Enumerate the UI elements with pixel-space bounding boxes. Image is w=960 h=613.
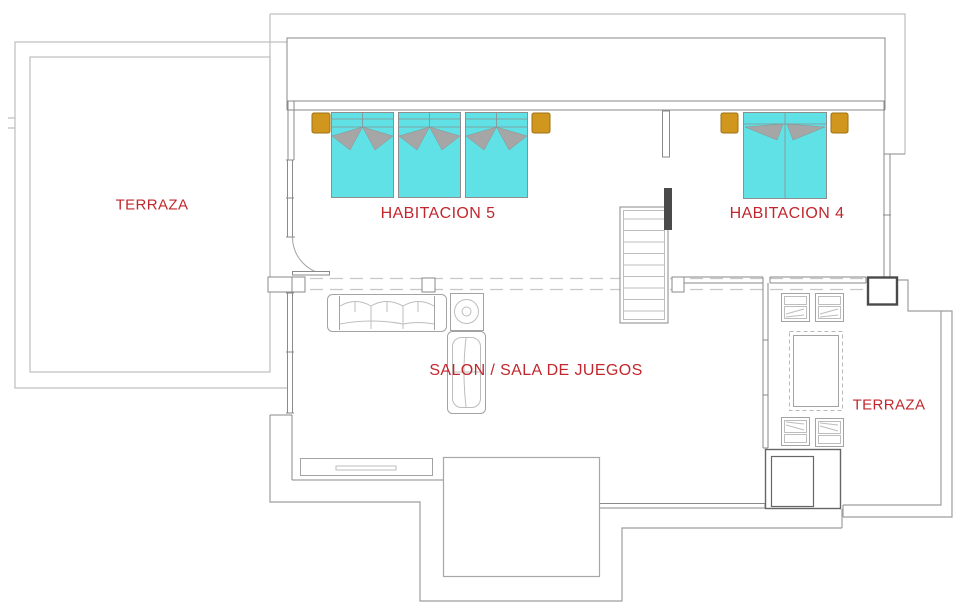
dining-table	[790, 332, 843, 411]
floor-plan: TERRAZA HABITACION 5 HABITACION 4 SALON …	[0, 0, 960, 613]
room-label-salon: SALON / SALA DE JUEGOS	[429, 362, 642, 380]
partition-hab5-hab4	[663, 111, 670, 157]
window-east	[883, 154, 891, 277]
sofa-3-seat	[328, 295, 447, 332]
room-label-habitacion-4: HABITACION 4	[730, 205, 845, 223]
window-west-upper	[286, 160, 295, 237]
salon-furniture	[301, 294, 486, 476]
nightstand	[721, 113, 738, 133]
east-wall	[868, 101, 905, 305]
nightstand	[831, 113, 848, 133]
terrace-chair	[816, 419, 844, 447]
side-table-with-lamp	[451, 294, 484, 331]
single-bed	[398, 112, 461, 198]
window-west-lower	[286, 293, 294, 413]
stairs	[620, 188, 672, 323]
floor-plan-drawing	[0, 0, 960, 613]
room-label-terraza-left: TERRAZA	[116, 197, 189, 214]
terrace-chair	[816, 294, 844, 322]
terrace-chair	[782, 294, 810, 322]
lower-roof-volume	[444, 458, 600, 577]
roof-strip	[287, 38, 885, 110]
room-label-terraza-right: TERRAZA	[853, 397, 926, 414]
terrace-chair	[782, 418, 810, 446]
salon-south-wall	[598, 504, 765, 509]
single-bed	[465, 112, 528, 198]
single-bed	[331, 112, 394, 198]
nightstand	[532, 113, 550, 133]
habitacion-4-furniture	[721, 112, 848, 199]
sideboard	[301, 459, 433, 476]
salon-terrace-divider	[763, 283, 768, 448]
column-east	[868, 278, 897, 305]
habitacion-5-furniture	[312, 112, 550, 198]
double-bed	[743, 112, 827, 199]
nightstand	[312, 113, 330, 133]
door-swing	[293, 237, 331, 275]
terrace-left-outline	[8, 42, 288, 388]
planter	[766, 450, 841, 509]
roof-edge-dashed-lines	[270, 279, 885, 290]
stair-wall	[664, 188, 672, 230]
terrace-right-furniture	[782, 294, 844, 447]
room-label-habitacion-5: HABITACION 5	[381, 205, 496, 223]
